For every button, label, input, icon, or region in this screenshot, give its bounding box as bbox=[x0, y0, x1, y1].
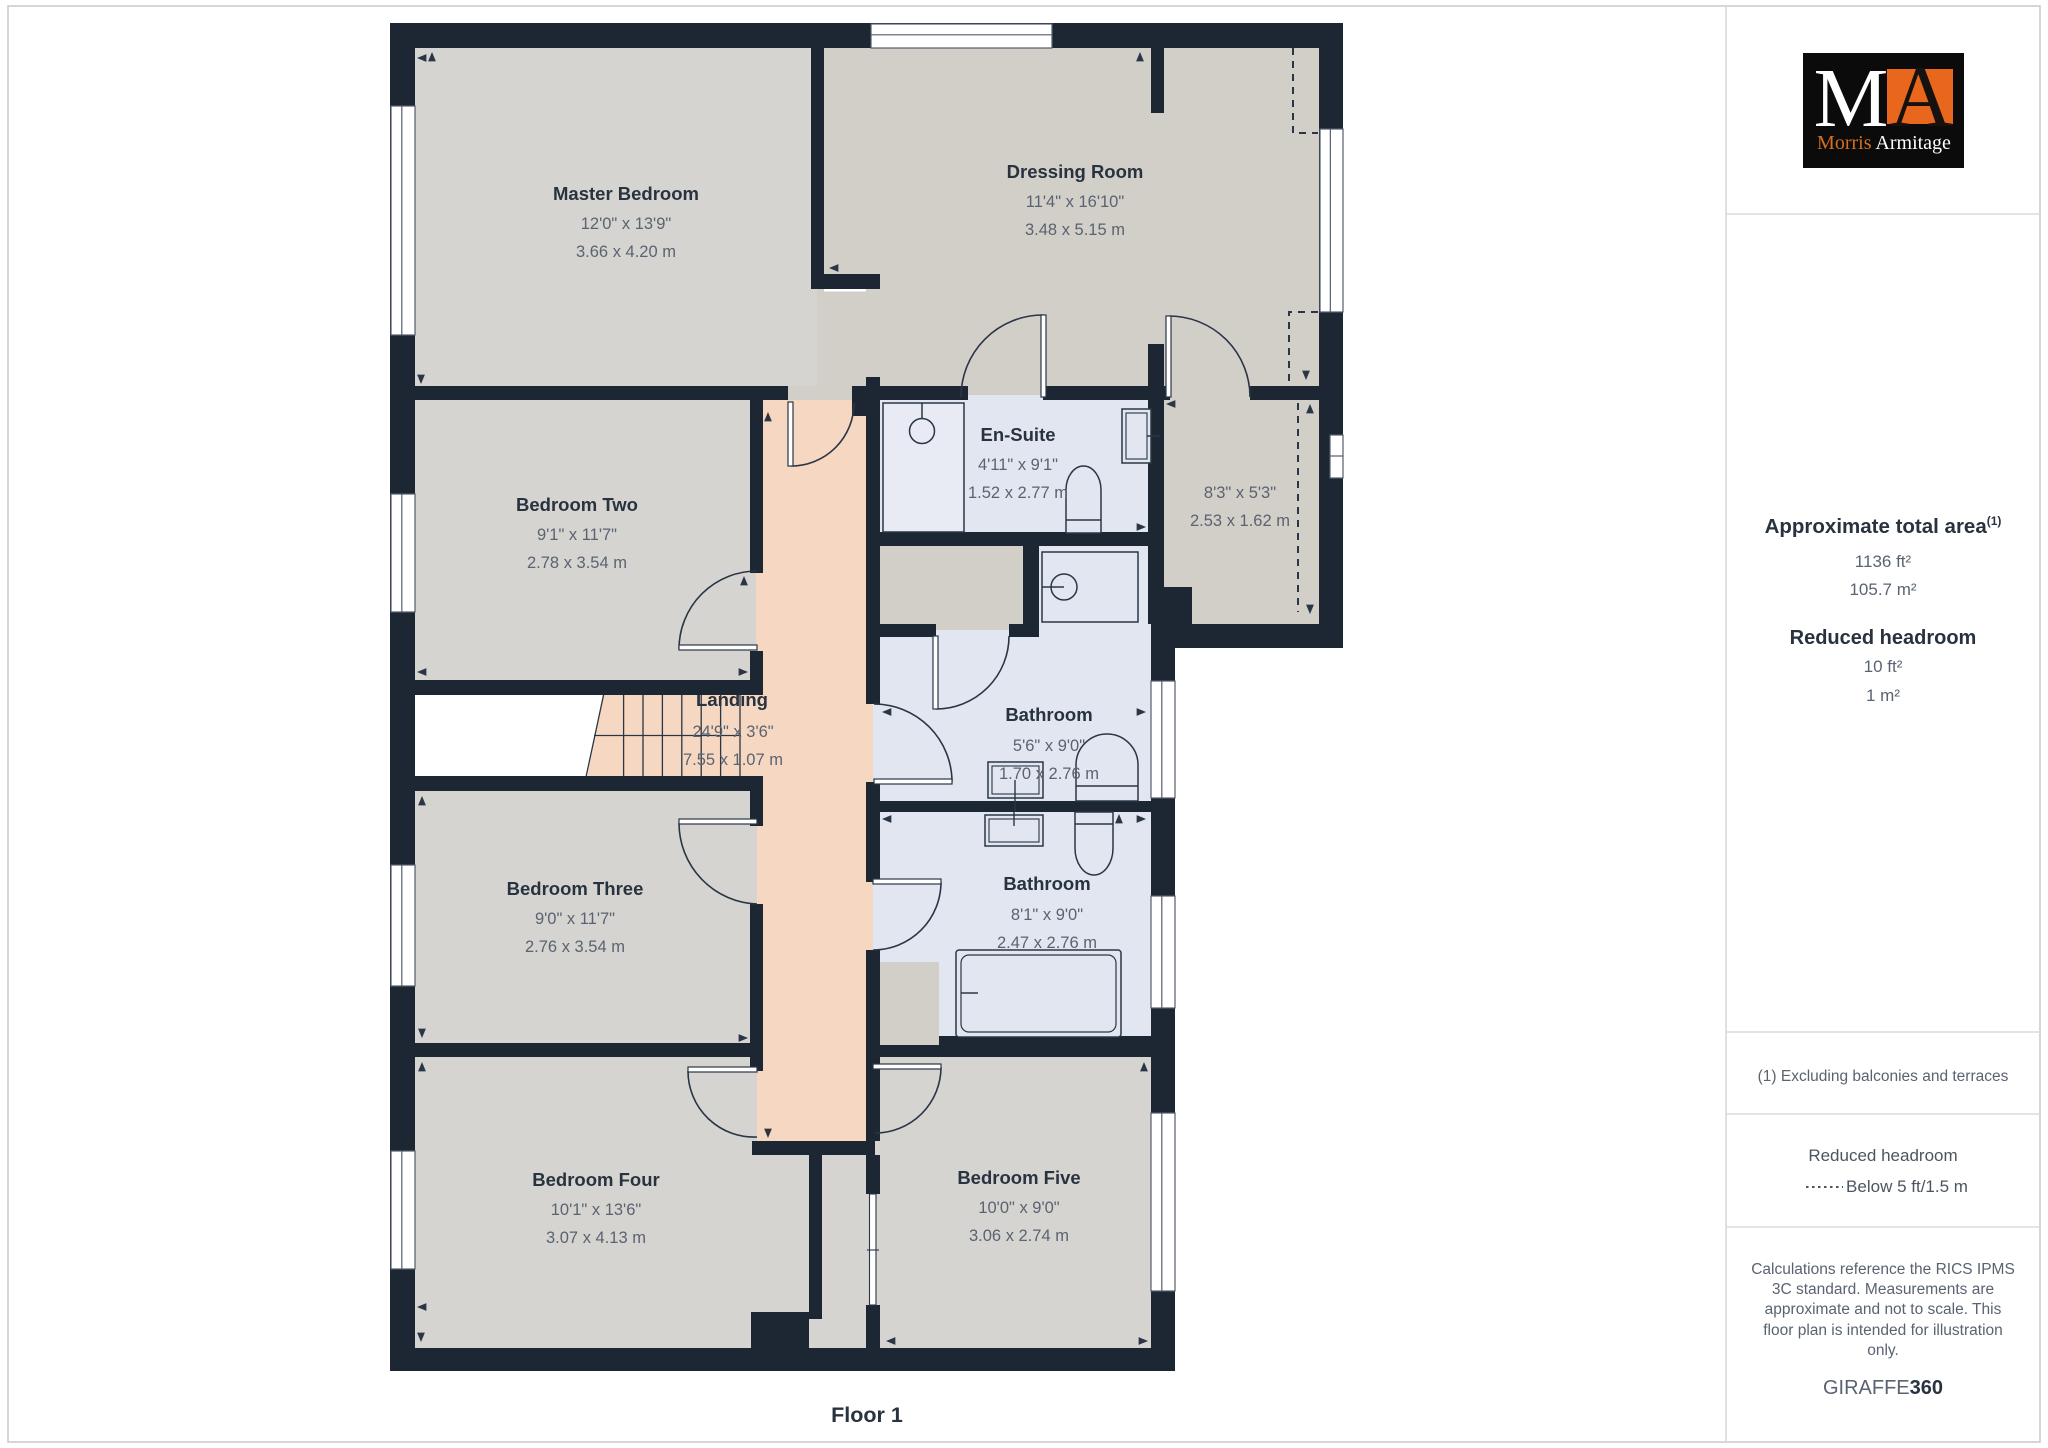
svg-text:12'0" x 13'9": 12'0" x 13'9" bbox=[581, 215, 672, 233]
svg-text:1.70 x 2.76 m: 1.70 x 2.76 m bbox=[999, 765, 1099, 783]
svg-text:7.55 x 1.07 m: 7.55 x 1.07 m bbox=[683, 751, 783, 769]
svg-text:1 m²: 1 m² bbox=[1866, 686, 1900, 705]
svg-text:Bedroom Two: Bedroom Two bbox=[516, 494, 638, 515]
svg-text:3C standard. Measurements are: 3C standard. Measurements are bbox=[1772, 1281, 1994, 1298]
svg-text:10'1" x 13'6": 10'1" x 13'6" bbox=[551, 1201, 642, 1219]
svg-text:10 ft²: 10 ft² bbox=[1864, 657, 1903, 676]
svg-text:Bedroom Three: Bedroom Three bbox=[507, 878, 644, 899]
svg-text:Reduced headroom: Reduced headroom bbox=[1790, 627, 1977, 649]
svg-text:approximate and not to scale.: approximate and not to scale. This bbox=[1765, 1301, 2002, 1318]
svg-text:Bathroom: Bathroom bbox=[1005, 704, 1092, 725]
svg-text:5'6" x 9'0": 5'6" x 9'0" bbox=[1013, 737, 1085, 755]
svg-text:8'3" x 5'3": 8'3" x 5'3" bbox=[1204, 484, 1276, 502]
svg-text:Dressing Room: Dressing Room bbox=[1007, 161, 1144, 182]
svg-text:Bedroom Five: Bedroom Five bbox=[957, 1167, 1080, 1188]
svg-text:Reduced headroom: Reduced headroom bbox=[1808, 1146, 1957, 1165]
svg-text:105.7 m²: 105.7 m² bbox=[1849, 580, 1916, 599]
svg-text:Bedroom Four: Bedroom Four bbox=[532, 1169, 659, 1190]
svg-text:9'1" x 11'7": 9'1" x 11'7" bbox=[537, 526, 617, 544]
svg-text:only.: only. bbox=[1867, 1342, 1899, 1359]
svg-text:1.52 x 2.77 m: 1.52 x 2.77 m bbox=[968, 484, 1068, 502]
svg-text:Calculations reference the RIC: Calculations reference the RICS IPMS bbox=[1751, 1261, 2015, 1278]
svg-text:4'11" x 9'1": 4'11" x 9'1" bbox=[978, 456, 1058, 474]
svg-text:3.66 x 4.20 m: 3.66 x 4.20 m bbox=[576, 243, 676, 261]
svg-text:1136 ft²: 1136 ft² bbox=[1855, 552, 1912, 571]
svg-text:3.06 x 2.74 m: 3.06 x 2.74 m bbox=[969, 1227, 1069, 1245]
svg-text:GIRAFFE360: GIRAFFE360 bbox=[1823, 1377, 1943, 1399]
svg-text:floor plan is intended for ill: floor plan is intended for illustration bbox=[1763, 1322, 2003, 1339]
svg-text:9'0" x 11'7": 9'0" x 11'7" bbox=[535, 910, 615, 928]
svg-text:2.78 x 3.54 m: 2.78 x 3.54 m bbox=[527, 554, 627, 572]
svg-text:10'0" x 9'0": 10'0" x 9'0" bbox=[978, 1199, 1059, 1217]
svg-text:24'9" x 3'6": 24'9" x 3'6" bbox=[692, 723, 773, 741]
svg-text:3.48 x 5.15 m: 3.48 x 5.15 m bbox=[1025, 221, 1125, 239]
svg-text:2.47 x 2.76 m: 2.47 x 2.76 m bbox=[997, 934, 1097, 952]
svg-text:2.76 x 3.54 m: 2.76 x 3.54 m bbox=[525, 938, 625, 956]
svg-text:Bathroom: Bathroom bbox=[1003, 873, 1090, 894]
svg-text:2.53 x 1.62 m: 2.53 x 1.62 m bbox=[1190, 512, 1290, 530]
svg-text:Morris Armitage: Morris Armitage bbox=[1817, 132, 1951, 154]
svg-text:Approximate total area(1): Approximate total area(1) bbox=[1765, 514, 2002, 538]
svg-text:Below 5 ft/1.5 m: Below 5 ft/1.5 m bbox=[1846, 1177, 1968, 1196]
svg-text:Master Bedroom: Master Bedroom bbox=[553, 183, 699, 204]
svg-text:Floor 1: Floor 1 bbox=[831, 1403, 903, 1427]
svg-text:11'4" x 16'10": 11'4" x 16'10" bbox=[1026, 193, 1125, 211]
svg-text:8'1" x 9'0": 8'1" x 9'0" bbox=[1011, 906, 1083, 924]
svg-text:En-Suite: En-Suite bbox=[980, 424, 1055, 445]
svg-text:(1) Excluding balconies and te: (1) Excluding balconies and terraces bbox=[1758, 1068, 2009, 1085]
svg-text:3.07 x 4.13 m: 3.07 x 4.13 m bbox=[546, 1229, 646, 1247]
